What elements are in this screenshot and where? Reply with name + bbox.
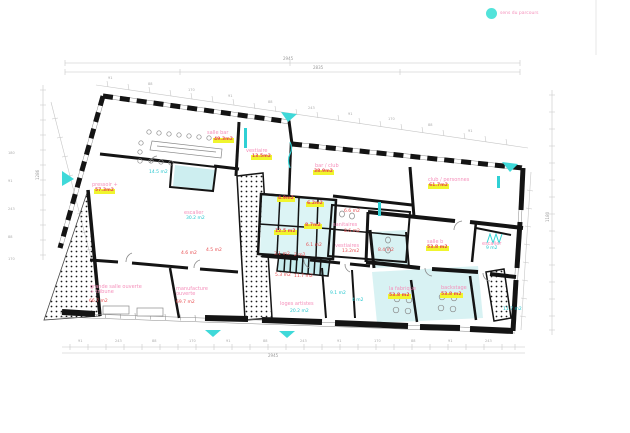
- dim-chain-value: 170: [374, 340, 381, 344]
- area-badge: 49.3m2: [213, 138, 234, 143]
- area-label: 4.5 m2: [206, 249, 222, 254]
- dim-chain-value: 91: [448, 340, 452, 344]
- dim-chain-value: 88: [148, 83, 152, 87]
- area-label: 8.6 m2: [344, 230, 360, 235]
- area-badge: 53.8 m2: [440, 293, 463, 298]
- area-label: 9.1 m2: [330, 292, 346, 297]
- area-badge: 12.5 m2: [274, 230, 297, 235]
- area-label: 20.2 m2: [290, 310, 309, 315]
- area-label: 69.7 m2: [176, 301, 195, 306]
- dim-chain-value: 91: [8, 180, 12, 184]
- area-label: 2 m2: [294, 254, 306, 259]
- room-label-sanitaires: sanitaires: [333, 223, 357, 228]
- area-label: 4 m2: [352, 299, 364, 304]
- dim-chain-value: 88: [268, 101, 272, 105]
- area-label: 30.2 m2: [186, 217, 205, 222]
- dim-chain-value: 91: [226, 340, 230, 344]
- dim-chain-value: 243: [308, 107, 315, 111]
- area-label: 5.3 m2: [275, 274, 291, 279]
- legend-dot-icon: [486, 8, 497, 19]
- dim-chain-value: 170: [188, 89, 195, 93]
- room-label-backstage: backstage: [441, 286, 467, 291]
- legend-label: sens du parcours: [500, 11, 539, 16]
- room-label-salle-bar: salle bar: [207, 131, 228, 136]
- dim-chain-value: 243: [8, 208, 15, 212]
- area-label: 11.7 m2: [294, 275, 313, 280]
- dim-chain-value: 243: [115, 340, 122, 344]
- area-label: 3.1 m2: [274, 253, 290, 258]
- dim-chain-value: 91: [108, 77, 112, 81]
- dim-chain-value: 91: [78, 340, 82, 344]
- dim-chain-value: 170: [388, 118, 395, 122]
- dim-top-total: 2945: [283, 57, 293, 61]
- dim-top-sub: 2835: [313, 66, 323, 70]
- dim-left-total: 1286: [36, 170, 40, 180]
- area-label: 6.6 m2: [344, 210, 360, 215]
- dim-chain-value: 91: [228, 95, 232, 99]
- area-badge: 4.9m2: [277, 197, 295, 202]
- room-label-loges: loges artistes: [280, 302, 314, 307]
- dim-chain-value: 91: [337, 340, 341, 344]
- dim-chain-value: 88: [152, 340, 156, 344]
- area-label: 14.5 m2: [149, 171, 168, 176]
- room-label-manufacture-2: ouverte: [176, 292, 195, 297]
- dim-bottom-total: 2945: [268, 354, 278, 358]
- area-badge: 57.3m2: [94, 189, 115, 194]
- area-label: 11.7 m2: [503, 308, 522, 313]
- area-badge: 13.5m2: [251, 155, 272, 160]
- area-label: 4.6 m2: [181, 252, 197, 257]
- dim-chain-value: 243: [300, 340, 307, 344]
- area-label: 13.2m2: [342, 250, 359, 255]
- dim-chain-value: 88: [428, 124, 432, 128]
- dim-chain-value: 88: [263, 340, 267, 344]
- area-badge: 6.2m2: [306, 202, 324, 207]
- area-label: 6.1 m2: [306, 244, 322, 249]
- dim-chain-value: 88: [8, 236, 12, 240]
- dim-chain-value: 180: [8, 152, 15, 156]
- area-badge: 53.8 m2: [388, 294, 411, 299]
- area-label: 9 m2: [486, 247, 498, 252]
- room-label-grande-salle-2: + tribune: [90, 290, 114, 295]
- room-label-la-fabrique: la fabrique: [389, 287, 416, 292]
- dim-chain-value: 243: [485, 340, 492, 344]
- area-badge: 53.8 m2: [426, 246, 449, 251]
- legend: sens du parcours: [486, 8, 539, 19]
- dim-chain-value: 170: [189, 340, 196, 344]
- area-badge: 61.7m2: [428, 184, 449, 189]
- area-label: 8.4 m2: [378, 249, 394, 254]
- dim-chain-value: 88: [411, 340, 415, 344]
- area-label: 66.7 m2: [89, 300, 108, 305]
- dim-chain-value: 170: [8, 258, 15, 262]
- dim-chain-value: 91: [468, 130, 472, 134]
- floor-plan-canvas: sens du parcours salle bar 49.3m2 vestia…: [0, 0, 630, 433]
- dim-right-total: 1180: [546, 212, 550, 222]
- area-badge: 8.7m2: [304, 224, 322, 229]
- area-badge: 38.9m2: [313, 170, 334, 175]
- dim-chain-value: 91: [348, 113, 352, 117]
